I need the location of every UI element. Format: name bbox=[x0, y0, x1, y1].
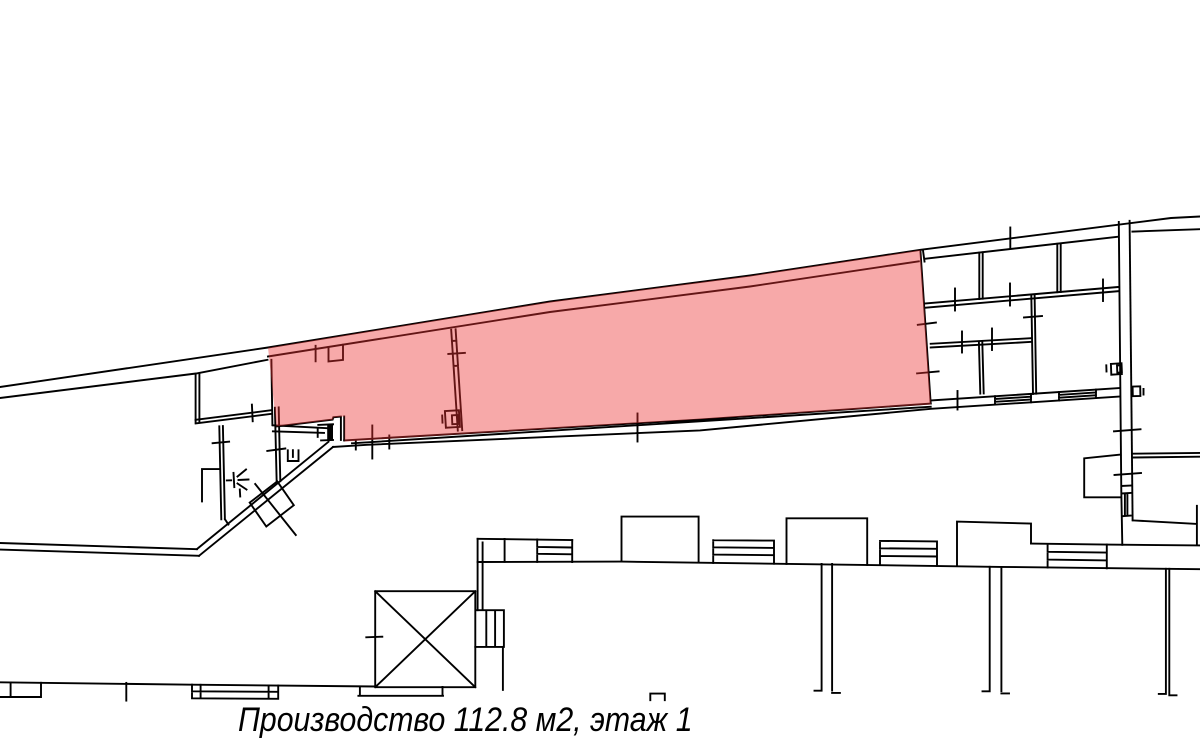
svg-text:Производство 112.8 м2, этаж 1: Производство 112.8 м2, этаж 1 bbox=[238, 700, 693, 738]
